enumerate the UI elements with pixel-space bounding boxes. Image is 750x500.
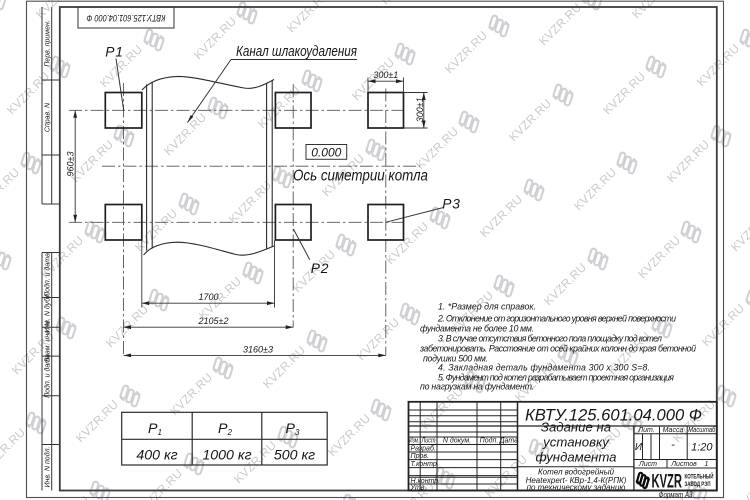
svg-text:960±3: 960±3 (65, 152, 75, 177)
svg-text:КОТЕЛЬНЫЙ: КОТЕЛЬНЫЙ (685, 473, 714, 481)
svg-text:фундамента: фундамента (535, 450, 616, 465)
svg-text:KVZR.RU: KVZR.RU (284, 0, 332, 35)
svg-text:1700: 1700 (198, 292, 218, 302)
svg-text:KVZR.RU: KVZR.RU (0, 425, 28, 473)
svg-text:Листов: Листов (670, 461, 697, 468)
svg-text:Задание на: Задание на (541, 420, 611, 435)
svg-text:Подп. и дата: Подп. и дата (44, 354, 52, 398)
svg-text:1: 1 (705, 461, 709, 468)
svg-text:3160±3: 3160±3 (243, 344, 273, 354)
svg-text:забетонировать. Расстояние от: забетонировать. Расстояние от осей крайн… (419, 343, 696, 353)
svg-text:по техническому заданию: по техническому заданию (527, 483, 626, 492)
svg-text:KVZR.RU: KVZR.RU (44, 493, 92, 500)
svg-text:Масса: Масса (663, 427, 684, 434)
svg-text:Пров.: Пров. (411, 453, 430, 460)
svg-text:KVZR.RU: KVZR.RU (33, 0, 81, 21)
svg-text:4. Закладная деталь фундамент: 4. Закладная деталь фундамента 300 x 300… (438, 362, 650, 372)
svg-text:Р2: Р2 (311, 261, 329, 276)
svg-text:KVZR.RU: KVZR.RU (354, 315, 402, 363)
svg-text:KVZR: KVZR (652, 470, 683, 492)
svg-text:KVZR.RU: KVZR.RU (728, 206, 750, 254)
svg-text:установку: установку (542, 435, 610, 450)
svg-text:KVZR.RU: KVZR.RU (103, 302, 151, 350)
svg-text:Лист: Лист (638, 461, 657, 468)
svg-text:500 кг: 500 кг (274, 448, 315, 464)
svg-text:Р1: Р1 (148, 421, 162, 437)
svg-text:Лит.: Лит. (637, 427, 654, 434)
svg-text:КВТУ.125.601.04.000 Ф: КВТУ.125.601.04.000 Ф (86, 13, 165, 23)
svg-text:Подп.: Подп. (480, 437, 499, 445)
svg-text:ЗАВОД РЭП: ЗАВОД РЭП (685, 482, 711, 488)
svg-text:N докум.: N докум. (443, 437, 471, 445)
svg-text:KVZR.RU: KVZR.RU (734, 466, 750, 500)
svg-text:Подп. и дата: Подп. и дата (44, 253, 52, 297)
svg-text:2105±2: 2105±2 (198, 316, 229, 326)
svg-text:Лист: Лист (421, 438, 436, 445)
svg-text:KVZR.RU: KVZR.RU (664, 137, 712, 185)
svg-text:1. *Размер для справок.: 1. *Размер для справок. (438, 302, 536, 312)
svg-text:Р1: Р1 (105, 45, 123, 60)
svg-text:KVZR.RU: KVZR.RU (132, 206, 180, 254)
svg-text:1:20: 1:20 (691, 442, 713, 454)
svg-text:фундамента не более 10 мм.: фундамента не более 10 мм. (420, 323, 534, 333)
svg-text:KVZR.RU: KVZR.RU (73, 397, 121, 445)
svg-text:3. В случае отсутствия бетонн: 3. В случае отсутствия бетонного пола пл… (438, 333, 662, 343)
svg-text:1000 кг: 1000 кг (202, 448, 251, 464)
svg-text:KVZR.RU: KVZR.RU (255, 83, 303, 131)
svg-text:KVZR.RU: KVZR.RU (137, 466, 185, 500)
svg-text:KVZR.RU: KVZR.RU (694, 41, 742, 89)
svg-text:по нагрузкам на фундамент.: по нагрузкам на фундамент. (420, 382, 534, 392)
svg-text:Ось симетрии котла: Ось симетрии котла (293, 167, 428, 184)
svg-text:KVZR.RU: KVZR.RU (167, 370, 215, 418)
svg-text:KVZR.RU: KVZR.RU (161, 110, 209, 158)
svg-text:Масштаб: Масштаб (688, 426, 716, 434)
svg-text:400 кг: 400 кг (136, 448, 177, 464)
svg-text:KVZR.RU: KVZR.RU (506, 96, 554, 144)
svg-text:И: И (635, 442, 643, 453)
svg-text:Разраб.: Разраб. (411, 445, 436, 453)
svg-text:KVZR.RU: KVZR.RU (477, 192, 525, 240)
svg-text:Т.контр.: Т.контр. (411, 461, 439, 468)
svg-text:Изм.: Изм. (409, 438, 419, 445)
svg-text:KVZR.RU: KVZR.RU (325, 411, 373, 459)
svg-text:300±1: 300±1 (373, 70, 398, 80)
svg-text:KVZR.RU: KVZR.RU (541, 260, 589, 308)
svg-text:Инв. N подл.: Инв. N подл. (44, 446, 52, 487)
svg-text:KVZR.RU: KVZR.RU (635, 233, 683, 281)
svg-text:Утв.: Утв. (410, 484, 427, 491)
svg-text:KVZR.RU: KVZR.RU (600, 69, 648, 117)
svg-text:KVZR.RU: KVZR.RU (413, 124, 461, 172)
svg-text:Дата: Дата (499, 438, 519, 445)
svg-text:Р2: Р2 (218, 421, 232, 437)
svg-text:KVZR.RU: KVZR.RU (629, 0, 677, 21)
svg-text:Перв. примен.: Перв. примен. (45, 20, 52, 67)
svg-text:KVZR.RU: KVZR.RU (383, 219, 431, 267)
svg-text:KVZR.RU: KVZR.RU (0, 165, 22, 213)
svg-text:300±1: 300±1 (415, 97, 425, 122)
svg-text:0.000: 0.000 (311, 145, 341, 159)
svg-text:Справ. N: Справ. N (45, 102, 52, 132)
svg-text:KVZR.RU: KVZR.RU (191, 14, 239, 62)
svg-text:-: - (671, 439, 675, 451)
svg-text:2. Отклонение от горизонтальн: 2. Отклонение от горизонтального уровня … (437, 313, 676, 323)
svg-text:Канал шлакоудаления: Канал шлакоудаления (236, 44, 357, 60)
svg-text:KVZR.RU: KVZR.RU (571, 165, 619, 213)
svg-text:KVZR.RU: KVZR.RU (442, 28, 490, 76)
svg-text:Р3: Р3 (286, 421, 300, 437)
svg-text:Р3: Р3 (442, 197, 460, 212)
